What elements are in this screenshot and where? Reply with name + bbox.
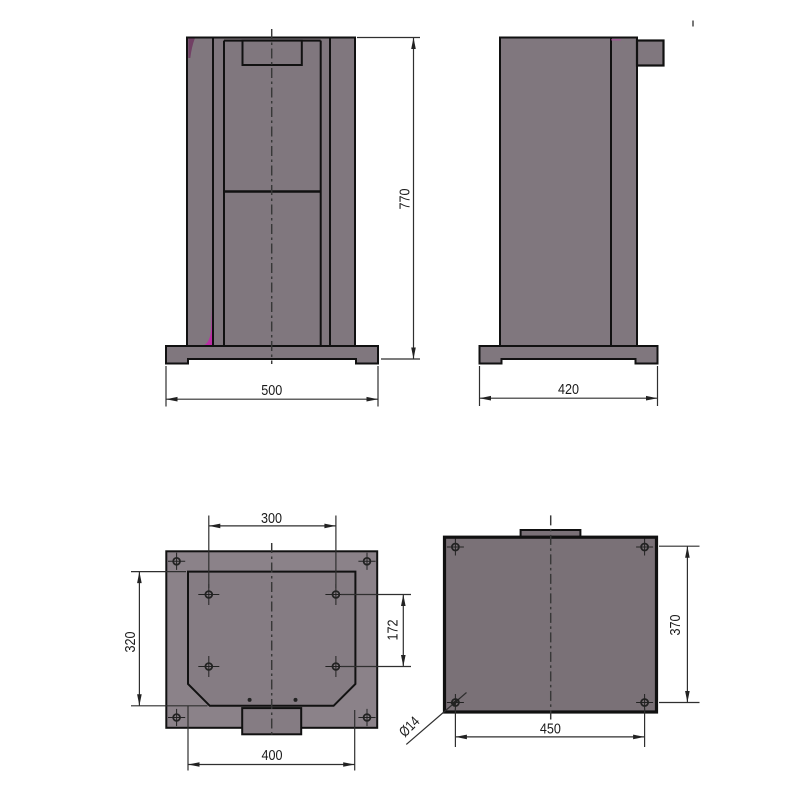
svg-text:400: 400	[262, 748, 283, 764]
svg-text:420: 420	[558, 382, 579, 398]
svg-text:320: 320	[123, 632, 139, 653]
svg-text:370: 370	[668, 615, 684, 636]
svg-text:172: 172	[385, 620, 401, 641]
svg-text:770: 770	[398, 189, 414, 210]
svg-text:500: 500	[261, 383, 282, 399]
svg-text:450: 450	[540, 722, 561, 738]
svg-text:300: 300	[261, 511, 282, 527]
